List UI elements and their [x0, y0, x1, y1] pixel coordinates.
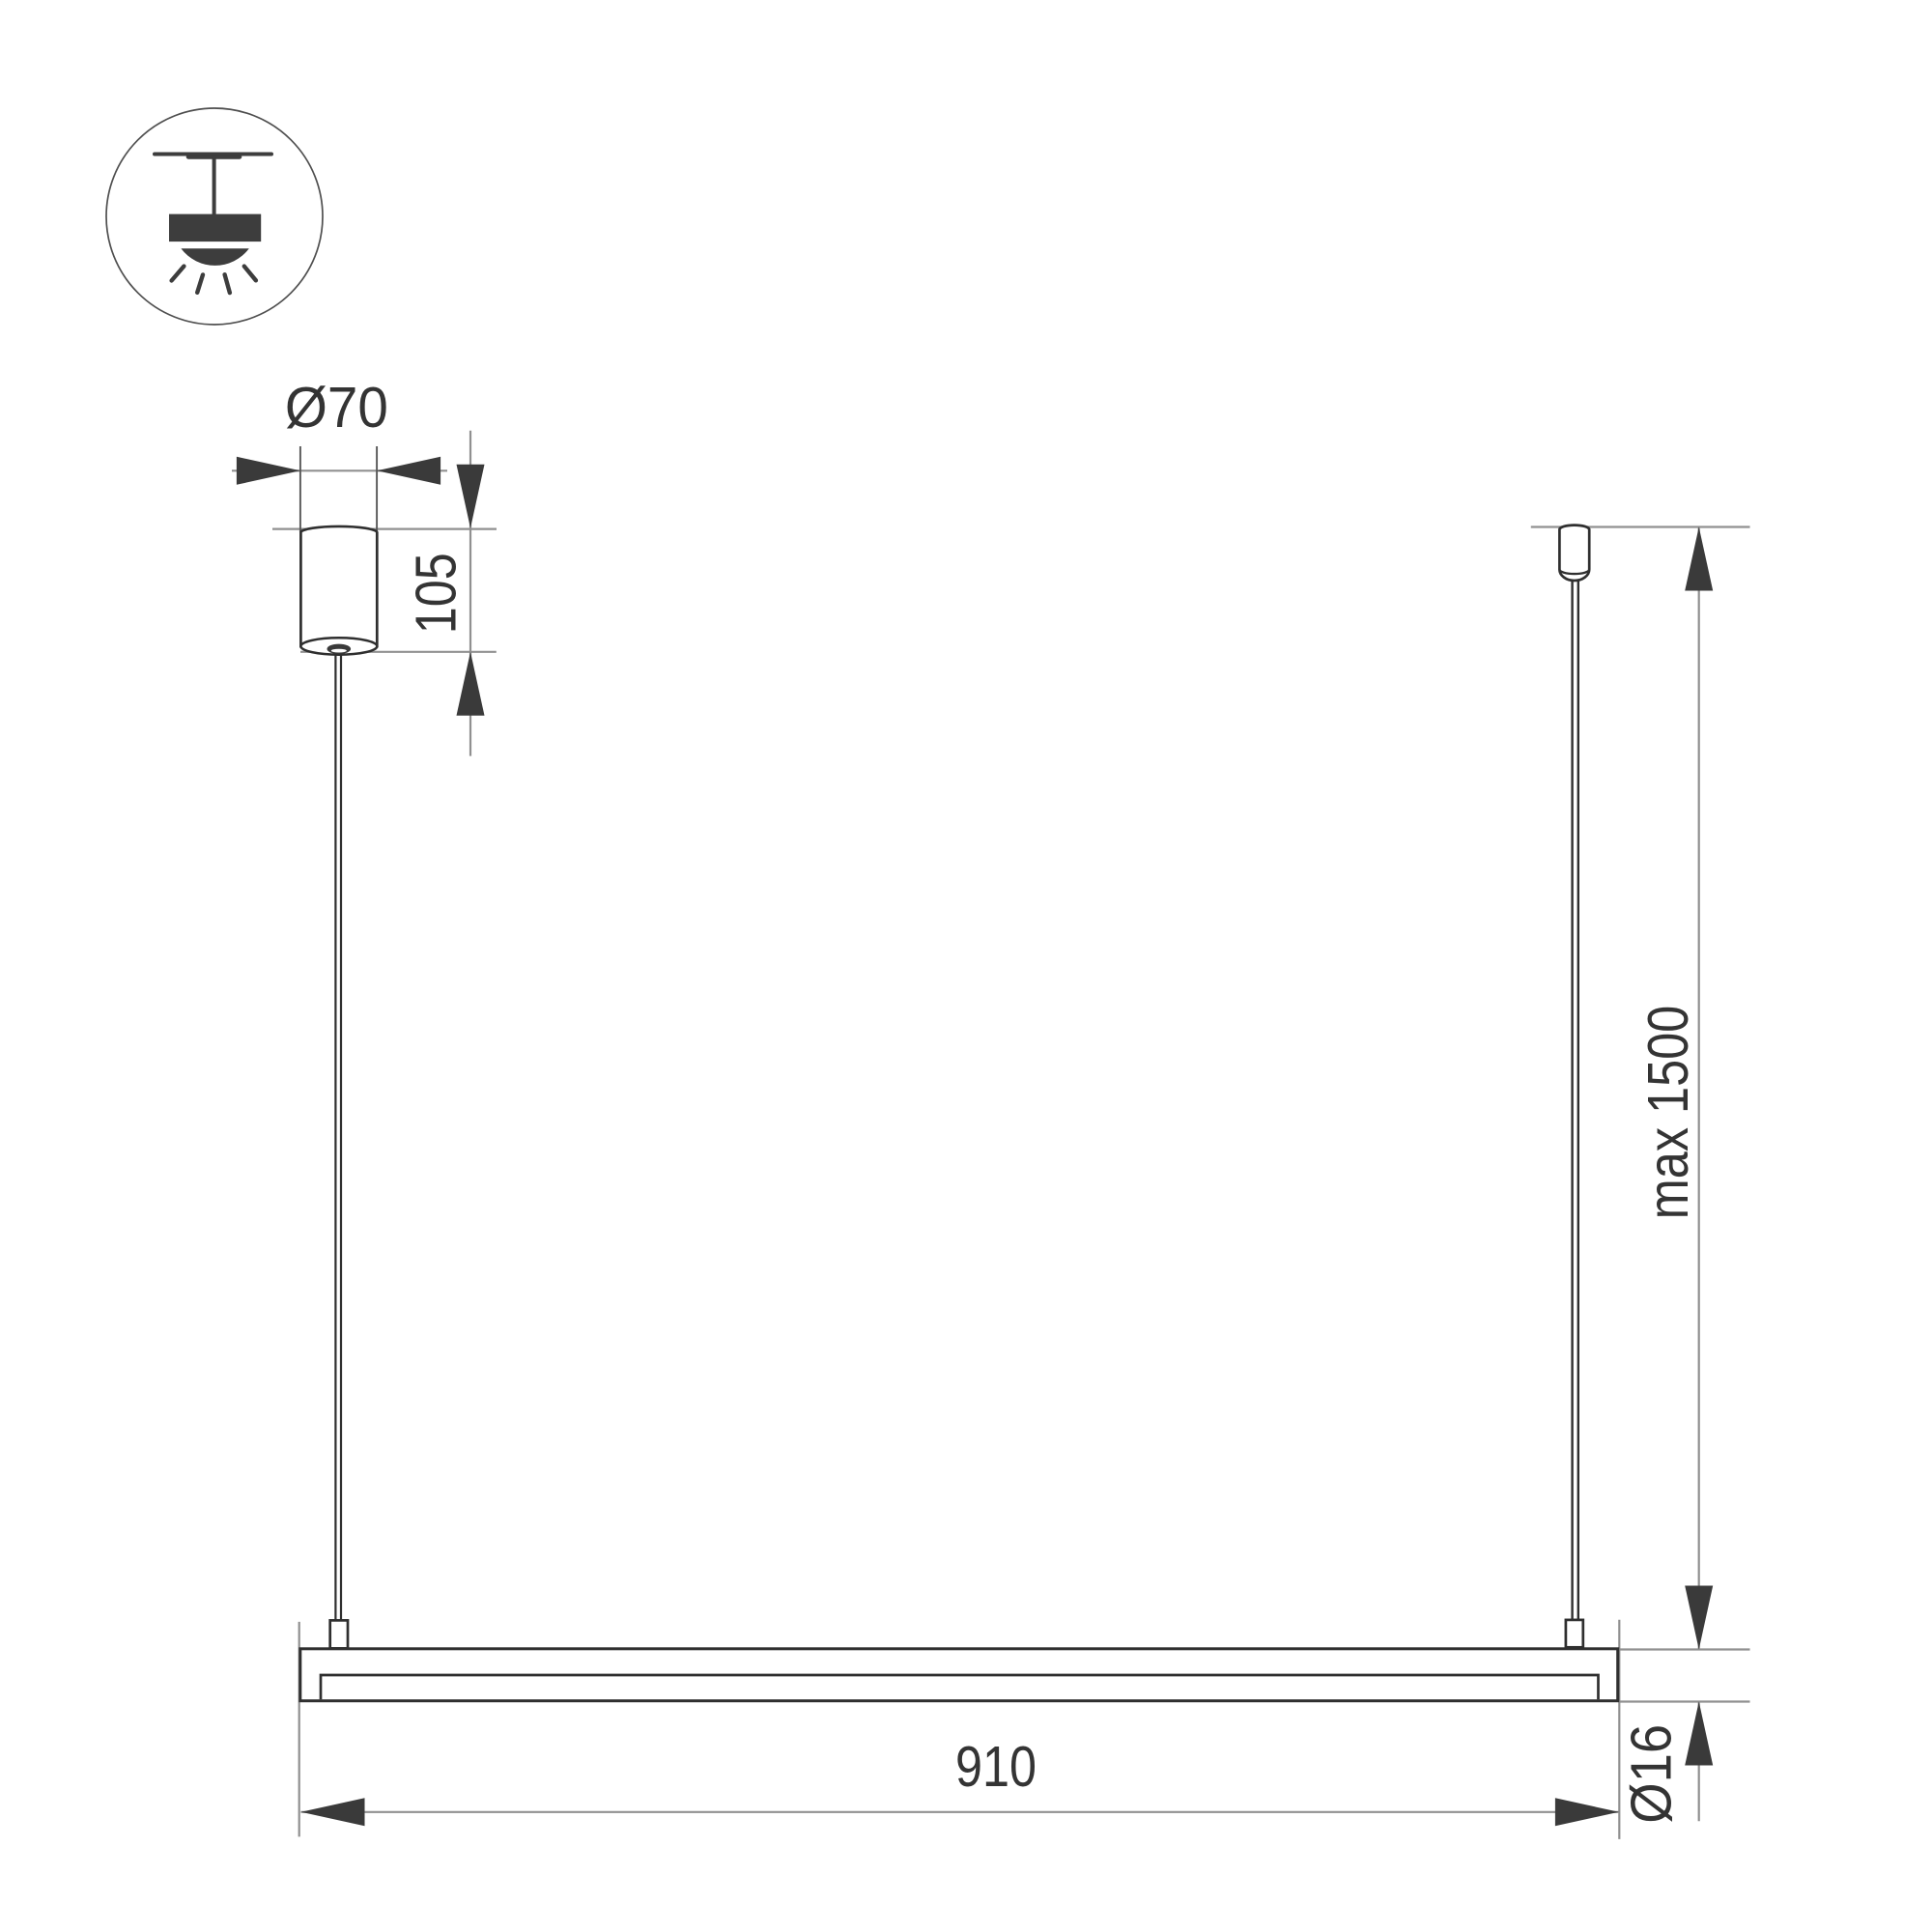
- svg-text:910: 910: [955, 1735, 1037, 1799]
- svg-text:Ø70: Ø70: [285, 376, 388, 440]
- svg-text:Ø16: Ø16: [1620, 1724, 1684, 1824]
- svg-text:max 1500: max 1500: [1635, 1006, 1700, 1219]
- svg-text:105: 105: [404, 553, 468, 634]
